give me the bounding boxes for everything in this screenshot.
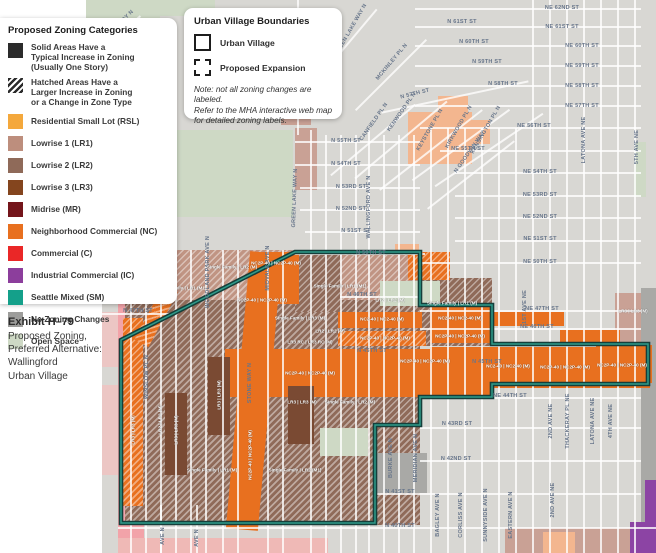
street-label: KEYSTONE PL N [416, 108, 445, 152]
street-label: N 50TH ST [356, 250, 386, 256]
street-label: N 53RD ST [336, 184, 366, 190]
zone-label: NC2P-40 | NC2P-40 (M) [597, 363, 647, 368]
legend-item: Residential Small Lot (RSL) [8, 114, 171, 129]
street-label: N GOODWIN WAY [453, 130, 486, 174]
zone-label: LR3 | LR3 (M) [618, 309, 647, 314]
street-label: WALLINGFORD AVE N [366, 176, 372, 239]
exhibit-line: Preferred Alternative: [8, 343, 102, 356]
boundaries-panel: Urban Village Boundaries Urban Village P… [184, 8, 342, 119]
street-label: STONE WAY N [247, 363, 253, 404]
legend-item: Lowrise 3 (LR3) [8, 180, 171, 195]
street-label: THACKERAY PL NE [565, 393, 571, 448]
legend-color-swatch-icon [8, 158, 23, 173]
street-label: N 55TH ST [331, 138, 361, 144]
hatched-area-swatch-icon [8, 78, 23, 93]
exhibit-title: Exhibit H–79 [8, 316, 102, 328]
zone-label: Single Family | LR1 (M1) [314, 284, 367, 289]
zoning-map-page: N 61ST STN 60TH STN 59TH STN 58TH STN 57… [0, 0, 656, 553]
legend-item: Commercial (C) [8, 246, 171, 261]
street-label: NE 47TH ST [525, 306, 559, 312]
zone-label: NC2-40 | NC2-40 (M) [486, 364, 530, 369]
legend-item: Lowrise 1 (LR1) [8, 136, 171, 151]
street-label: NE 59TH ST [565, 63, 599, 69]
legend-item: Neighborhood Commercial (NC) [8, 224, 171, 239]
street-label: 2ND AVE NE [550, 483, 556, 518]
zone-label: NC2P-40 | NC2P-40 (M) [237, 298, 287, 303]
zone-label: NC2P-40 | NC2P-40 (M) [360, 336, 410, 341]
zone-label: LR3 RC | LR3 RC (M) [287, 340, 332, 345]
zone-label: Single Family | LR2 (M) [207, 265, 257, 270]
street-label: CORLISS AVE N [458, 492, 464, 537]
street-label: CANFIELD PL N [359, 102, 390, 142]
exhibit-line: Proposed Zoning, [8, 330, 102, 343]
street-label: BURKE AVE N [388, 438, 394, 478]
zone-label: NC2P-40 | NC2P-40 (M) [251, 261, 301, 266]
zone-label: LR2 | LR2 (M) [375, 298, 404, 303]
street-label: MIDVALE AVE N [265, 245, 271, 290]
proposed-expansion-label: Proposed Expansion [220, 63, 305, 73]
zone-label: NC2P-40 | NC2P-40 (M) [435, 334, 485, 339]
street-label: WOODLAND PARK AVE N [205, 236, 211, 308]
street-label: N 42ND ST [441, 456, 471, 462]
street-label: NE 60TH ST [565, 43, 599, 49]
zone-label: LR3 | LR3 (M) [217, 380, 222, 409]
zone-label: Single Family | LR2 (M1) [269, 468, 322, 473]
street-label: EASTERN AVE N [508, 491, 514, 538]
street-label: NE 61ST ST [545, 24, 578, 30]
zone-label: NC2P-40 | NC2P-40 (M) [285, 371, 335, 376]
street-label: AVE N [160, 527, 166, 545]
street-label: KIRKWOOD PL N [444, 105, 473, 150]
street-label: N 61ST ST [447, 19, 476, 25]
street-label: BAGLEY AVE N [435, 493, 441, 537]
street-label: N 58TH ST [488, 81, 518, 87]
legend-hatched-note: Hatched Areas Have a Larger Increase in … [8, 78, 171, 107]
legend-item-label: Residential Small Lot (RSL) [31, 116, 139, 126]
zone-label: LR2 | LR2 (M) [158, 405, 163, 434]
street-label: 4TH AVE NE [608, 404, 614, 438]
zone-label: LR3 | LR3 (M) [287, 400, 316, 405]
boundary-item-urban-village: Urban Village [194, 34, 334, 51]
legend-color-swatch-icon [8, 224, 23, 239]
street-label: NE 53RD ST [523, 192, 557, 198]
zone-label: NC2P-40 | NC2P-40 (M) [400, 359, 450, 364]
street-label: NE 56TH ST [517, 123, 551, 129]
legend-color-swatch-icon [8, 202, 23, 217]
urban-village-outline-icon [194, 34, 211, 51]
legend-item: Industrial Commercial (IC) [8, 268, 171, 283]
boundaries-title: Urban Village Boundaries [194, 16, 334, 27]
boundary-item-proposed-expansion: Proposed Expansion [194, 59, 334, 76]
zone-label: Single Family | LR3 (M) [275, 316, 325, 321]
street-label: NE 58TH ST [565, 83, 599, 89]
legend-item-label: Lowrise 2 (LR2) [31, 160, 93, 170]
street-label: NE 50TH ST [523, 259, 557, 265]
legend-item: Seattle Mixed (SM) [8, 290, 171, 305]
legend-color-swatch-icon [8, 136, 23, 151]
street-label: 5TH AVE NE [634, 130, 640, 164]
legend-category-list: Residential Small Lot (RSL)Lowrise 1 (LR… [8, 114, 171, 349]
street-label: LATONA AVE NE [581, 117, 587, 164]
legend-item-label: Midrise (MR) [31, 204, 81, 214]
legend-color-swatch-icon [8, 290, 23, 305]
street-label: SUNNYSIDE AVE N [483, 488, 489, 542]
street-label: NE 57TH ST [565, 103, 599, 109]
street-label: NE 51ST ST [523, 236, 556, 242]
legend-title: Proposed Zoning Categories [8, 25, 171, 36]
urban-village-label: Urban Village [220, 38, 275, 48]
legend-item-label: Neighborhood Commercial (NC) [31, 226, 157, 236]
legend-color-swatch-icon [8, 268, 23, 283]
hatched-note-text: Hatched Areas Have a Larger Increase in … [31, 78, 132, 107]
legend-color-swatch-icon [8, 246, 23, 261]
legend-panel: Proposed Zoning Categories Solid Areas H… [0, 18, 177, 304]
street-label: N 60TH ST [459, 39, 489, 45]
legend-color-swatch-icon [8, 180, 23, 195]
legend-item-label: Industrial Commercial (IC) [31, 270, 134, 280]
zone-label: LR3 | LR3 (M) [131, 415, 136, 444]
legend-item: Lowrise 2 (LR2) [8, 158, 171, 173]
street-label: AVE N [194, 529, 200, 547]
street-label: WINSLOW PL N [144, 355, 150, 399]
street-label: N 45TH ST [357, 348, 387, 354]
street-label: NE 62ND ST [545, 5, 579, 11]
proposed-expansion-outline-icon [194, 59, 211, 76]
street-label: N 59TH ST [472, 59, 502, 65]
legend-color-swatch-icon [8, 114, 23, 129]
legend-item-label: Commercial (C) [31, 248, 92, 258]
zone-label: LR3 | LR3 (M) [174, 415, 179, 444]
zone-label: Single Family | LR2 (M) [325, 400, 375, 405]
street-label: LATONA AVE NE [590, 398, 596, 445]
street-label: 1ST AVE NE [522, 290, 528, 324]
legend-item-label: Seattle Mixed (SM) [31, 292, 104, 302]
street-label: NE 44TH ST [493, 393, 527, 399]
street-label: 2ND AVE NE [548, 404, 554, 439]
street-label: MERIDIAN AVE N [413, 434, 419, 482]
exhibit-line: Wallingford [8, 356, 102, 369]
zone-label: LR2 | LR2 (M) [315, 329, 344, 334]
street-label: NE 54TH ST [523, 169, 557, 175]
zone-label: Single Family | LR1 (M) [427, 301, 477, 306]
zone-label: NC2P-40 | NC2P-40 (M) [540, 365, 590, 370]
legend-solid-note: Solid Areas Have a Typical Increase in Z… [8, 43, 171, 72]
street-label: N 43RD ST [442, 421, 472, 427]
solid-area-swatch-icon [8, 43, 23, 58]
solid-note-text: Solid Areas Have a Typical Increase in Z… [31, 43, 135, 72]
legend-item: Midrise (MR) [8, 202, 171, 217]
street-label: N 40TH ST [385, 523, 415, 529]
legend-item-label: Lowrise 1 (LR1) [31, 138, 93, 148]
zone-label: Single Family | LR1 (M) [187, 468, 237, 473]
boundaries-note: Note: not all zoning changes are labeled… [194, 85, 334, 126]
exhibit-block: Exhibit H–79 Proposed Zoning, Preferred … [8, 316, 102, 383]
zone-label: NC2P-40 | NC2P-40 (M) [248, 430, 253, 480]
street-label: NE 52ND ST [523, 214, 557, 220]
zone-label: NC2-40 | NC2-40 (M) [360, 317, 404, 322]
street-label: N 46TH ST [347, 292, 377, 298]
legend-item-label: Lowrise 3 (LR3) [31, 182, 93, 192]
street-label: MCKINLEY PL N [375, 43, 409, 82]
street-label: GREEN LAKE WAY N [291, 168, 299, 227]
street-label: N 52ND ST [336, 206, 366, 212]
street-label: N 41ST ST [385, 489, 414, 495]
street-label: NE 46TH ST [520, 324, 554, 330]
street-label: N 54TH ST [331, 161, 361, 167]
zone-label: NC2-40 | NC2-40 (M) [438, 316, 482, 321]
exhibit-line: Urban Village [8, 370, 102, 383]
